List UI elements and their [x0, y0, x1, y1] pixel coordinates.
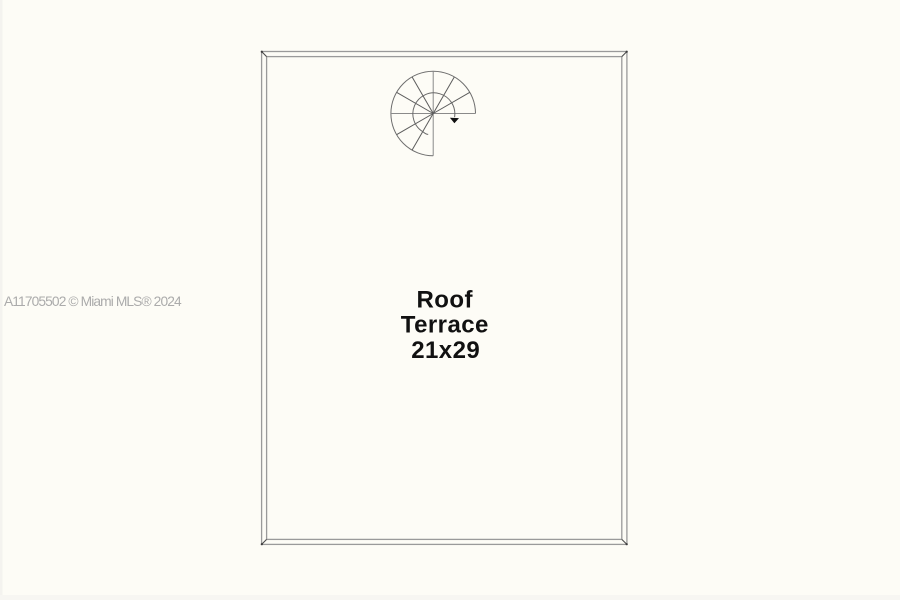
svg-text:Terrace: Terrace	[401, 311, 489, 338]
svg-text:21x29: 21x29	[411, 337, 480, 364]
svg-text:A11705502 © Miami MLS® 2024: A11705502 © Miami MLS® 2024	[4, 294, 182, 309]
svg-text:Roof: Roof	[416, 287, 473, 314]
